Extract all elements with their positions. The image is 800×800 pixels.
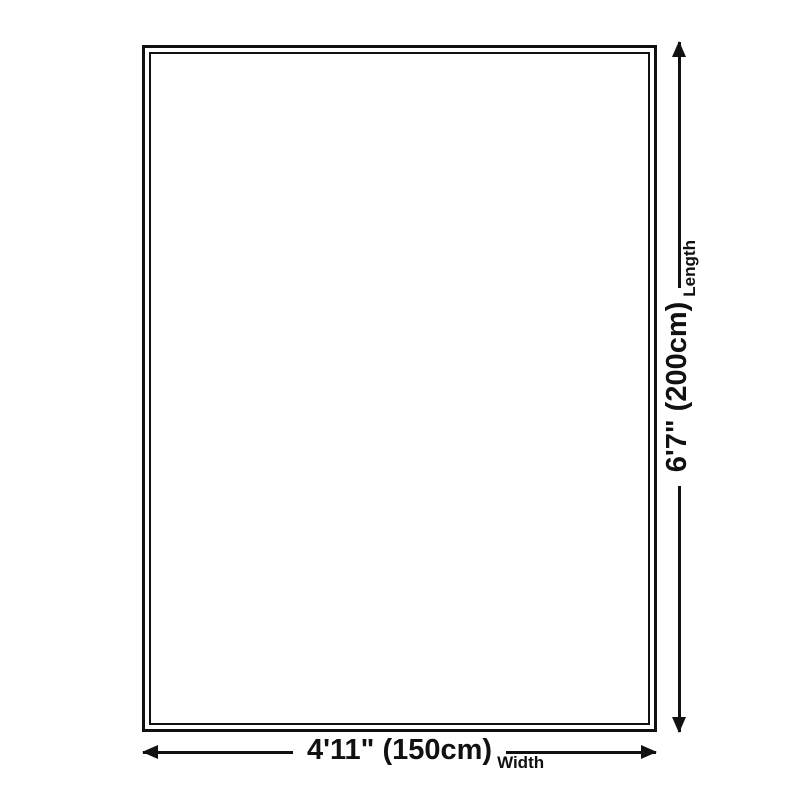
size-diagram: 6'7" (200cm) Length 4'11" (150cm) Width [0, 0, 800, 800]
width-value: 4'11" (150cm) [307, 734, 492, 766]
arrow-right-icon [506, 751, 656, 754]
length-value: 6'7" (200cm) [661, 302, 693, 473]
arrow-left-icon [143, 751, 293, 754]
width-annotation: 4'11" (150cm) Width [307, 734, 492, 771]
length-label: Length [681, 240, 698, 297]
length-annotation: 6'7" (200cm) Length [661, 302, 698, 473]
rug-outline [142, 45, 657, 732]
arrow-up-icon [678, 42, 681, 288]
length-dimension: 6'7" (200cm) Length [663, 42, 695, 732]
width-label: Width [497, 754, 544, 771]
rug-inner-outline [149, 52, 650, 725]
width-dimension: 4'11" (150cm) Width [143, 736, 656, 768]
arrow-down-icon [678, 486, 681, 732]
